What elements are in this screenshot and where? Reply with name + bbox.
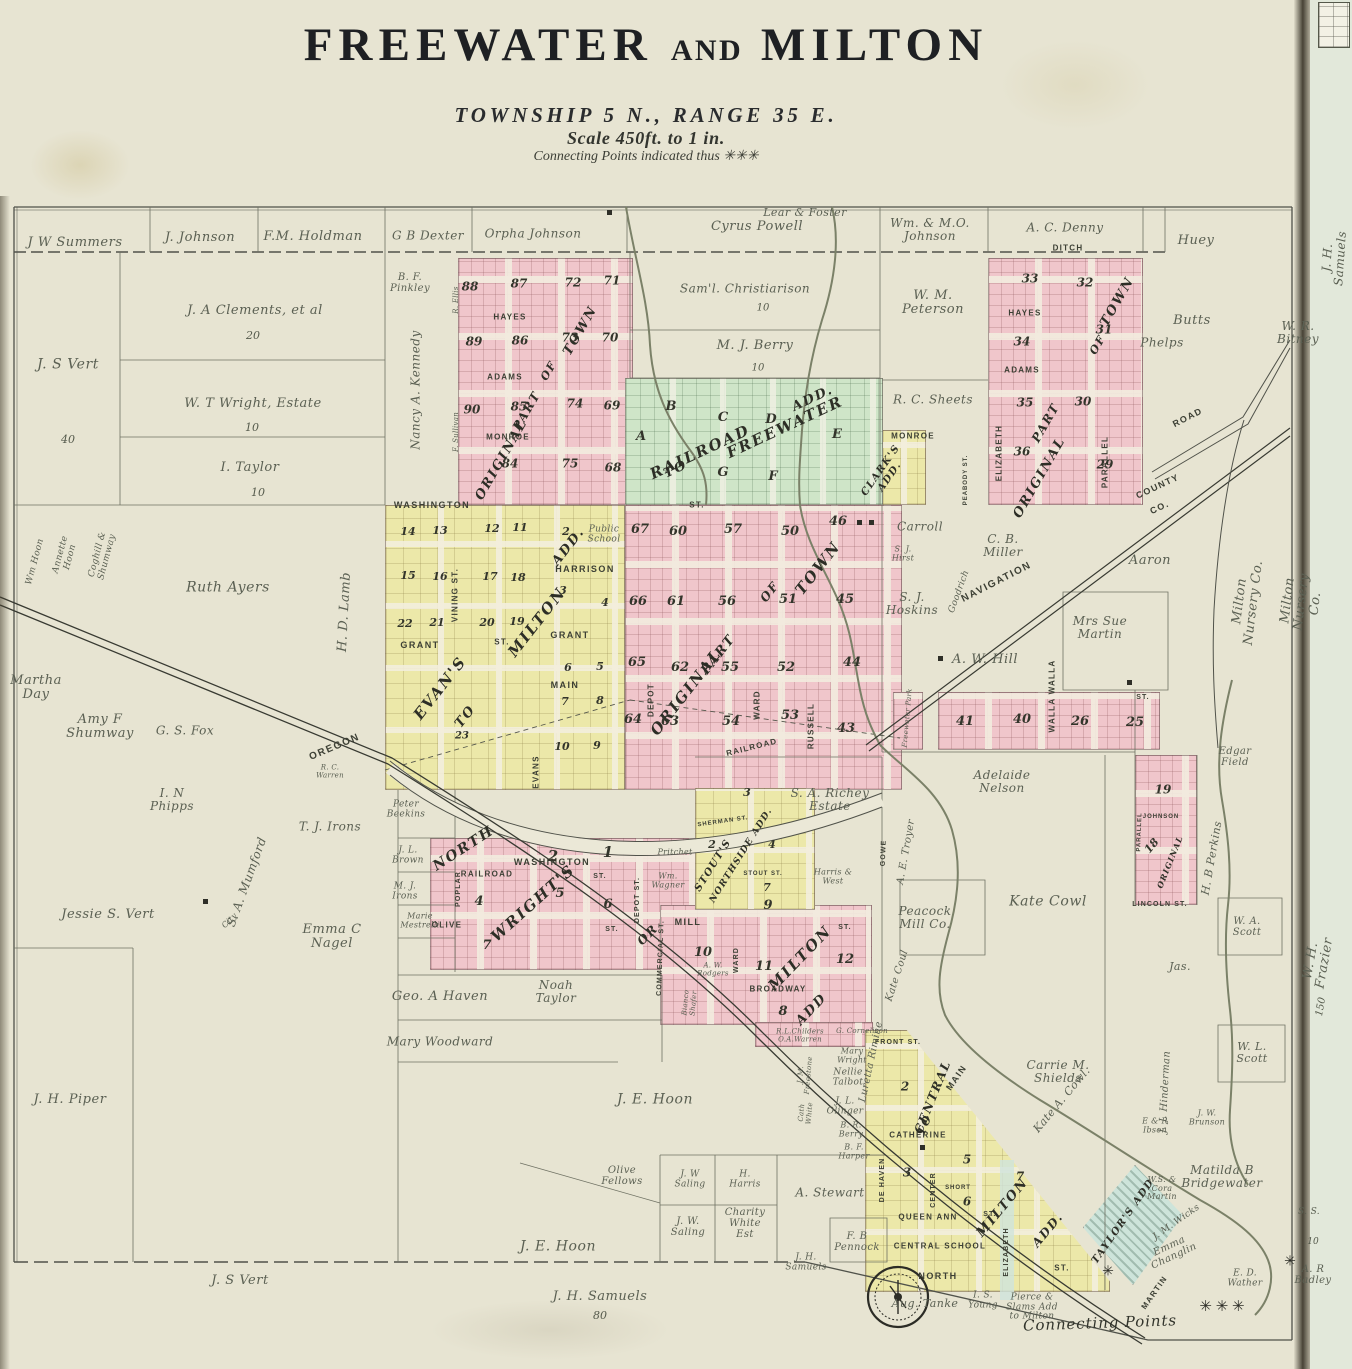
owner-label-milton-nursery-co: Milton Nursery Co. <box>1278 571 1327 633</box>
block-number-15: 15 <box>400 570 415 582</box>
street-label-depot-st: DEPOT ST. <box>634 877 642 923</box>
street-label-olive: OLIVE <box>432 922 462 931</box>
owner-label-noah-taylor: Noah Taylor <box>536 979 577 1005</box>
block-number-44: 44 <box>843 656 861 670</box>
oregon-railroad <box>0 597 1145 1344</box>
street-label-mill: MILL <box>675 918 702 928</box>
block-number-8: 8 <box>778 1005 787 1019</box>
acreage-number-20: 20 <box>246 330 260 342</box>
street-label-ward: WARD <box>733 947 741 973</box>
block-number-5: 5 <box>596 661 604 673</box>
street-label-hayes: HAYES <box>493 314 526 323</box>
owner-label-butts: Butts <box>1173 314 1211 328</box>
block-number-13: 13 <box>432 525 447 537</box>
block-number-46: 46 <box>829 515 847 529</box>
owner-label-mary-wright: Mary Wright <box>837 1047 867 1064</box>
map-title: FREEWATER AND MILTON <box>0 18 1292 72</box>
block-number-3: 3 <box>559 585 567 597</box>
block-number-34: 34 <box>1014 336 1031 349</box>
owner-label-matilda-b-bridgewater: Matilda B Bridgewater <box>1181 1164 1262 1190</box>
block-number-86: 86 <box>512 335 529 348</box>
plat-map-page: FREEWATER AND MILTON TOWNSHIP 5 N., RANG… <box>0 0 1352 1369</box>
block-number-4: 4 <box>768 839 776 851</box>
adjacent-page-inset-box <box>1318 2 1350 48</box>
block-number-5: 5 <box>555 887 564 901</box>
owner-label-r-c-warren: R. C. Warren <box>316 764 344 779</box>
block-number-3: 3 <box>903 1167 911 1180</box>
block-number-54: 54 <box>722 715 740 729</box>
owner-label-j-e-hoon: J. E. Hoon <box>617 1092 693 1107</box>
building-marks <box>203 210 1132 1150</box>
street-label-north: NORTH <box>918 1272 957 1282</box>
owner-label-emma-c-nagel: Emma C Nagel <box>302 923 361 951</box>
street-label-st: ST. <box>1136 694 1149 702</box>
block-number-68: 68 <box>605 462 622 475</box>
owner-label-r-c-sheets: R. C. Sheets <box>893 394 973 407</box>
township-range-line: TOWNSHIP 5 N., RANGE 35 E. <box>0 103 1292 128</box>
owner-label-jas: Jas. <box>1169 961 1191 973</box>
block-number-56: 56 <box>718 595 736 609</box>
owner-label-f-b-pennock: F. B Pennock <box>834 1232 880 1254</box>
owner-label-j-e-hoon: J. E. Hoon <box>520 1239 596 1254</box>
map-linework <box>0 0 1352 1369</box>
block-number-16: 16 <box>432 571 447 583</box>
block-number-74: 74 <box>567 398 584 411</box>
owner-label-j-s-vert: J. S Vert <box>37 357 99 372</box>
owner-label-g-cornelison: G. Cornelison <box>836 1028 888 1036</box>
block-number-41: 41 <box>956 715 974 729</box>
owner-label-j-w-brunson: J. W. Brunson <box>1189 1109 1225 1126</box>
block-number-12: 12 <box>836 953 854 967</box>
owner-label-e-r-ibson: E & R Ibson <box>1142 1117 1168 1134</box>
block-number-12: 12 <box>484 523 499 535</box>
owner-label-r-ellis: R. Ellis <box>453 286 461 313</box>
street-label-russell: RUSSELL <box>808 703 817 749</box>
block-number-66: 66 <box>629 595 647 609</box>
block-number-33: 33 <box>1022 273 1039 286</box>
owner-label-adelaide-nelson: Adelaide Nelson <box>974 769 1031 795</box>
owner-label-s-j-hirst: S. J. Hirst <box>892 545 914 562</box>
street-label-ward: WARD <box>754 690 763 720</box>
street-label-grant: GRANT <box>550 631 589 641</box>
owner-label-r-l-childers-o-a-warren: R.L.Childers O.A.Warren <box>776 1028 824 1043</box>
block-number-31: 31 <box>1096 324 1113 337</box>
block-number-7: 7 <box>482 939 491 953</box>
acreage-number-10: 10 <box>1307 1238 1318 1248</box>
owner-label-sam-l-christiarison: Sam'l. Christiarison <box>680 283 810 296</box>
owner-label-w-a-scott: W. A. Scott <box>1233 917 1262 939</box>
street-label-st: ST. <box>1054 1265 1069 1274</box>
street-label-monroe: MONROE <box>891 433 935 442</box>
title-part2: MILTON <box>761 19 988 71</box>
block-number-10: 10 <box>694 946 712 960</box>
owner-label-i-n-phipps: I. N Phipps <box>150 787 194 813</box>
block-number-72: 72 <box>565 277 582 290</box>
street-label-harrison: HARRISON <box>555 565 615 575</box>
acreage-number-10: 10 <box>245 422 259 434</box>
owner-label-g-b-dexter: G B Dexter <box>392 230 464 243</box>
street-label-lincoln-st: LINCOLN ST. <box>1132 901 1188 909</box>
street-label-elizabeth: ELIZABETH <box>996 425 1005 481</box>
block-number-4: 4 <box>474 895 483 909</box>
block-number-30: 30 <box>1075 396 1092 409</box>
owner-label-j-l-olinger: J. L. Olinger <box>827 1097 864 1116</box>
owner-label-aug-tanke: Aug. Tanke <box>892 1298 959 1310</box>
owner-label-wm-m-o-johnson: Wm. & M.O. Johnson <box>890 217 970 243</box>
connecting-points-note: Connecting Points indicated thus ✳✳✳ <box>0 148 1292 165</box>
owner-label-aaron: Aaron <box>1129 554 1171 568</box>
block-number-d: D <box>765 413 776 427</box>
street-label-main: MAIN <box>551 681 580 691</box>
block-number-6: 6 <box>564 662 572 674</box>
owner-label-nellie-talbot: Nellie Talbot <box>833 1068 864 1087</box>
owner-label-j-h-piper: J. H. Piper <box>34 1093 107 1107</box>
title-and: AND <box>671 34 743 67</box>
acreage-number-10: 10 <box>752 364 765 375</box>
owner-label-olive-fellows: Olive Fellows <box>601 1166 642 1188</box>
block-number-2: 2 <box>708 839 716 851</box>
block-number-10: 10 <box>554 741 569 753</box>
block-number-29: 29 <box>1097 459 1114 472</box>
block-number-19: 19 <box>1155 784 1172 797</box>
acreage-number-10: 10 <box>251 487 265 499</box>
street-label-ditch: DITCH <box>1053 245 1084 254</box>
owner-label-public-school: Public School <box>588 525 621 544</box>
block-number-26: 26 <box>1071 715 1089 729</box>
owner-label-m-j-berry: M. J. Berry <box>717 339 794 353</box>
block-number-45: 45 <box>836 593 854 607</box>
owner-label-e-d-wather: E. D. Wather <box>1227 1269 1262 1288</box>
block-number-55: 55 <box>721 661 739 675</box>
owner-label-jessie-s-vert: Jessie S. Vert <box>61 908 155 922</box>
block-number-25: 25 <box>1126 716 1144 730</box>
block-number-11: 11 <box>512 522 527 534</box>
owner-label-martha-day: Martha Day <box>10 674 62 702</box>
owner-label-a-r-badley: A. R Badley <box>1295 1265 1332 1287</box>
owner-label-f-m-holdman: F.M. Holdman <box>263 230 362 244</box>
title-part1: FREEWATER <box>304 19 653 71</box>
acreage-number-80: 80 <box>593 1310 607 1322</box>
owner-label-ruth-ayers: Ruth Ayers <box>186 580 270 595</box>
block-number-6: 6 <box>603 898 612 912</box>
block-number-84: 84 <box>502 458 519 471</box>
owner-label-bianco-shafer: Bianco Shafer <box>681 989 698 1016</box>
street-label-depot: DEPOT <box>648 683 657 717</box>
owner-label-h-harris: H. Harris <box>729 1170 760 1189</box>
block-number-g: G <box>717 466 728 480</box>
owner-label-huey: Huey <box>1178 234 1215 248</box>
owner-label-j-h-samuels: J. H. Samuels <box>1319 230 1349 287</box>
block-number-70: 70 <box>602 332 619 345</box>
block-number-40: 40 <box>1013 713 1031 727</box>
owner-label-amy-f-shumway: Amy F Shumway <box>66 713 134 741</box>
owner-label-j-w-saling: J. W Saling <box>674 1170 705 1189</box>
street-label-stout-st: STOUT ST. <box>743 871 782 877</box>
owner-label-b-r-berry: B. R. Berry <box>839 1121 863 1138</box>
owner-label-w-m-peterson: W. M. Peterson <box>902 289 964 317</box>
street-label-st: ST. <box>605 926 618 934</box>
owner-label-carrie-m-shields: Carrie M. Shields <box>1027 1059 1090 1085</box>
street-label-gowe: GOWE <box>880 840 888 867</box>
parcel-boundaries <box>14 207 1285 1290</box>
block-number-36: 36 <box>1014 446 1031 459</box>
block-number-32: 32 <box>1077 277 1094 290</box>
connecting-mark-x: ✳ ✳ ✳ <box>1199 1299 1244 1315</box>
owner-label-peter-beekins: Peter Beekins <box>387 800 426 819</box>
block-number-9: 9 <box>593 740 601 752</box>
owner-label-b-f-pinkley: B. F. Pinkley <box>390 273 430 295</box>
block-number-69: 69 <box>604 400 621 413</box>
street-label-evans: EVANS <box>533 755 542 788</box>
owner-label-geo-a-haven: Geo. A Haven <box>392 990 488 1004</box>
owner-label-i-taylor: I. Taylor <box>220 461 279 475</box>
block-number-22: 22 <box>397 618 412 630</box>
owner-label-s-s: S. S. <box>1298 1208 1320 1218</box>
owner-label-j-l-brown: J. L. Brown <box>392 846 424 865</box>
left-page-edge-shadow <box>0 196 10 1369</box>
street-label-railroad: RAILROAD <box>461 871 513 880</box>
block-number-2: 2 <box>562 526 570 538</box>
block-number-21: 21 <box>429 617 444 629</box>
street-label-st: ST. <box>689 502 704 511</box>
owner-label-lear-foster: Lear & Foster <box>763 207 847 219</box>
block-number-6: 6 <box>963 1196 971 1209</box>
owner-label-nancy-a-kennedy: Nancy A. Kennedy <box>410 330 423 449</box>
owner-label-a-c-denny: A. C. Denny <box>1027 222 1104 235</box>
owner-label-f-sullivan: F. Sullivan <box>453 412 461 452</box>
river-lines <box>626 207 1271 1315</box>
block-number-e: E <box>832 428 842 442</box>
street-label-st: ST. <box>838 924 851 932</box>
block-number-51: 51 <box>779 593 797 607</box>
block-number-19: 19 <box>509 616 524 628</box>
block-number-60: 60 <box>669 525 687 539</box>
block-number-9: 9 <box>763 899 772 913</box>
block-number-90: 90 <box>464 404 481 417</box>
block-number-88: 88 <box>462 281 479 294</box>
owner-label-j-h-samuels: J. H. Samuels <box>553 1290 648 1304</box>
block-number-57: 57 <box>724 523 742 537</box>
street-label-center: CENTER <box>930 1172 938 1208</box>
owner-label-edgar-field: Edgar Field <box>1219 747 1252 769</box>
street-label-adams: ADAMS <box>487 374 523 383</box>
owner-label-j-h-samuels: J. H. Samuels <box>785 1253 826 1272</box>
block-number-c: C <box>718 411 728 425</box>
owner-label-s-a-richey-estate: S. A. Richey Estate <box>791 787 870 813</box>
owner-label-g-s-fox: G. S. Fox <box>156 725 214 738</box>
owner-label-orpha-johnson: Orpha Johnson <box>485 228 582 241</box>
county-road <box>1152 340 1290 748</box>
street-label-queen-ann: QUEEN ANN <box>898 1214 957 1223</box>
acreage-number-10: 10 <box>757 304 770 315</box>
block-number-65: 65 <box>628 656 646 670</box>
owner-label-mary-woodward: Mary Woodward <box>387 1036 494 1049</box>
block-number-1: 1 <box>603 844 613 860</box>
connecting-mark-x: ✳ <box>1102 1264 1114 1279</box>
owner-label-t-j-irons: T. J. Irons <box>299 821 361 834</box>
street-label-peabody-st: PEABODY ST. <box>963 455 969 505</box>
owner-label-cyrus-powell: Cyrus Powell <box>711 220 803 234</box>
block-number-2: 2 <box>901 1081 909 1094</box>
block-number-67: 67 <box>631 523 649 537</box>
street-label-poplar: POPLAR <box>455 871 463 907</box>
page-fold-shadow <box>1294 0 1310 1369</box>
block-number-75: 75 <box>562 458 579 471</box>
street-label-central-school: CENTRAL SCHOOL <box>894 1243 986 1252</box>
owner-label-a-w-hill: A. W. Hill <box>952 653 1018 667</box>
street-label-adams: ADAMS <box>1004 367 1040 376</box>
block-number-85: 85 <box>511 401 528 414</box>
block-number-89: 89 <box>466 336 483 349</box>
block-number-52: 52 <box>777 661 795 675</box>
map-border <box>14 207 1292 1340</box>
owner-label-j-s-vert: J. S Vert <box>211 1274 269 1288</box>
owner-label-mrs-sue-martin: Mrs Sue Martin <box>1073 615 1127 641</box>
owner-label-w-s-cora-martin: W.S. & Cora Martin <box>1147 1176 1177 1202</box>
connecting-mark-x: ✳ <box>1284 1254 1296 1269</box>
block-number-4: 4 <box>601 597 609 609</box>
owner-label-charity-white-est: Charity White Est <box>725 1208 766 1240</box>
owner-label-s-j-hoskins: S. J. Hoskins <box>886 591 938 617</box>
street-label-parallel: PARALLEL <box>1136 812 1144 851</box>
owner-label-j-a-clements-et-al: J. A Clements, et al <box>187 304 323 318</box>
block-number-73: 73 <box>562 332 579 345</box>
street-label-de-haven: DE HAVEN <box>879 1158 887 1203</box>
block-number-64: 64 <box>624 713 642 727</box>
owner-label-m-j-irons: M. J. Irons <box>392 882 418 901</box>
street-label-short: SHORT <box>945 1185 971 1191</box>
block-number-f: F <box>768 470 777 484</box>
block-number-5: 5 <box>963 1154 971 1167</box>
block-number-8: 8 <box>596 695 604 707</box>
block-number-b: B <box>666 400 677 414</box>
owner-label-wm-wagner: Wm. Wagner <box>651 872 684 889</box>
owner-label-w-r-bitney: W. R. Bitney <box>1277 320 1319 346</box>
block-number-a: A <box>636 430 646 444</box>
acreage-number-40: 40 <box>61 434 75 446</box>
block-number-23: 23 <box>455 732 469 743</box>
owner-label-peacock-mill-co: Peacock Mill Co. <box>898 905 951 931</box>
owner-label-a-stewart: A. Stewart <box>795 1187 864 1200</box>
block-number-35: 35 <box>1017 397 1034 410</box>
block-number-7: 7 <box>1016 1171 1024 1184</box>
street-label-walla-walla: WALLA WALLA <box>1049 660 1058 733</box>
owner-label-c-b-miller: C. B. Miller <box>983 533 1023 559</box>
owner-label-phelps: Phelps <box>1140 337 1183 350</box>
owner-label-i-s-young: I. S. Young <box>968 1291 998 1310</box>
block-number-53: 53 <box>781 709 799 723</box>
block-number-3: 3 <box>743 787 751 799</box>
block-number-7: 7 <box>763 882 771 894</box>
scale-line: Scale 450ft. to 1 in. <box>0 128 1292 149</box>
owner-label-pritchet: Pritchet <box>657 849 692 858</box>
block-number-63: 63 <box>661 715 679 729</box>
block-number-87: 87 <box>511 278 528 291</box>
owner-label-j-w-summers: J W Summers <box>27 236 122 250</box>
block-number-20: 20 <box>479 617 494 629</box>
block-number-71: 71 <box>604 275 621 288</box>
block-number-62: 62 <box>671 661 689 675</box>
owner-label-cath-white: Cath White <box>798 1101 815 1125</box>
block-number-61: 61 <box>667 595 685 609</box>
street-label-hayes: HAYES <box>1008 310 1041 319</box>
street-label-washington: WASHINGTON <box>394 501 470 511</box>
street-label-st: ST. <box>593 873 606 881</box>
owner-label-w-t-wright-estate: W. T Wright, Estate <box>184 397 321 411</box>
street-label-grant: GRANT <box>400 641 439 651</box>
owner-label-kate-cowl: Kate Cowl <box>1009 894 1087 909</box>
owner-label-j-w-saling: J. W. Saling <box>671 1217 705 1239</box>
street-label-johnson: JOHNSON <box>1143 814 1179 820</box>
street-label-elizabeth: ELIZABETH <box>1003 1227 1011 1276</box>
owner-label-b-f-harper: B. F. Harper <box>838 1143 869 1160</box>
owner-label-harris-west: Harris & West <box>814 868 852 885</box>
block-number-2: 2 <box>548 848 558 864</box>
owner-label-j-johnson: J. Johnson <box>165 231 235 245</box>
block-number-7: 7 <box>561 696 569 708</box>
owner-label-a-w-rodgers: A. W. Rodgers <box>697 962 729 977</box>
owner-label-carroll: Carroll <box>897 521 943 534</box>
block-number-18: 18 <box>510 572 525 584</box>
block-number-50: 50 <box>781 525 799 539</box>
block-number-17: 17 <box>482 571 497 583</box>
owner-label-w-l-scott: W. L. Scott <box>1236 1041 1267 1065</box>
block-number-11: 11 <box>755 960 773 974</box>
street-label-vining-st: VINING ST. <box>452 568 461 622</box>
block-number-43: 43 <box>837 722 855 736</box>
block-number-14: 14 <box>400 526 415 538</box>
